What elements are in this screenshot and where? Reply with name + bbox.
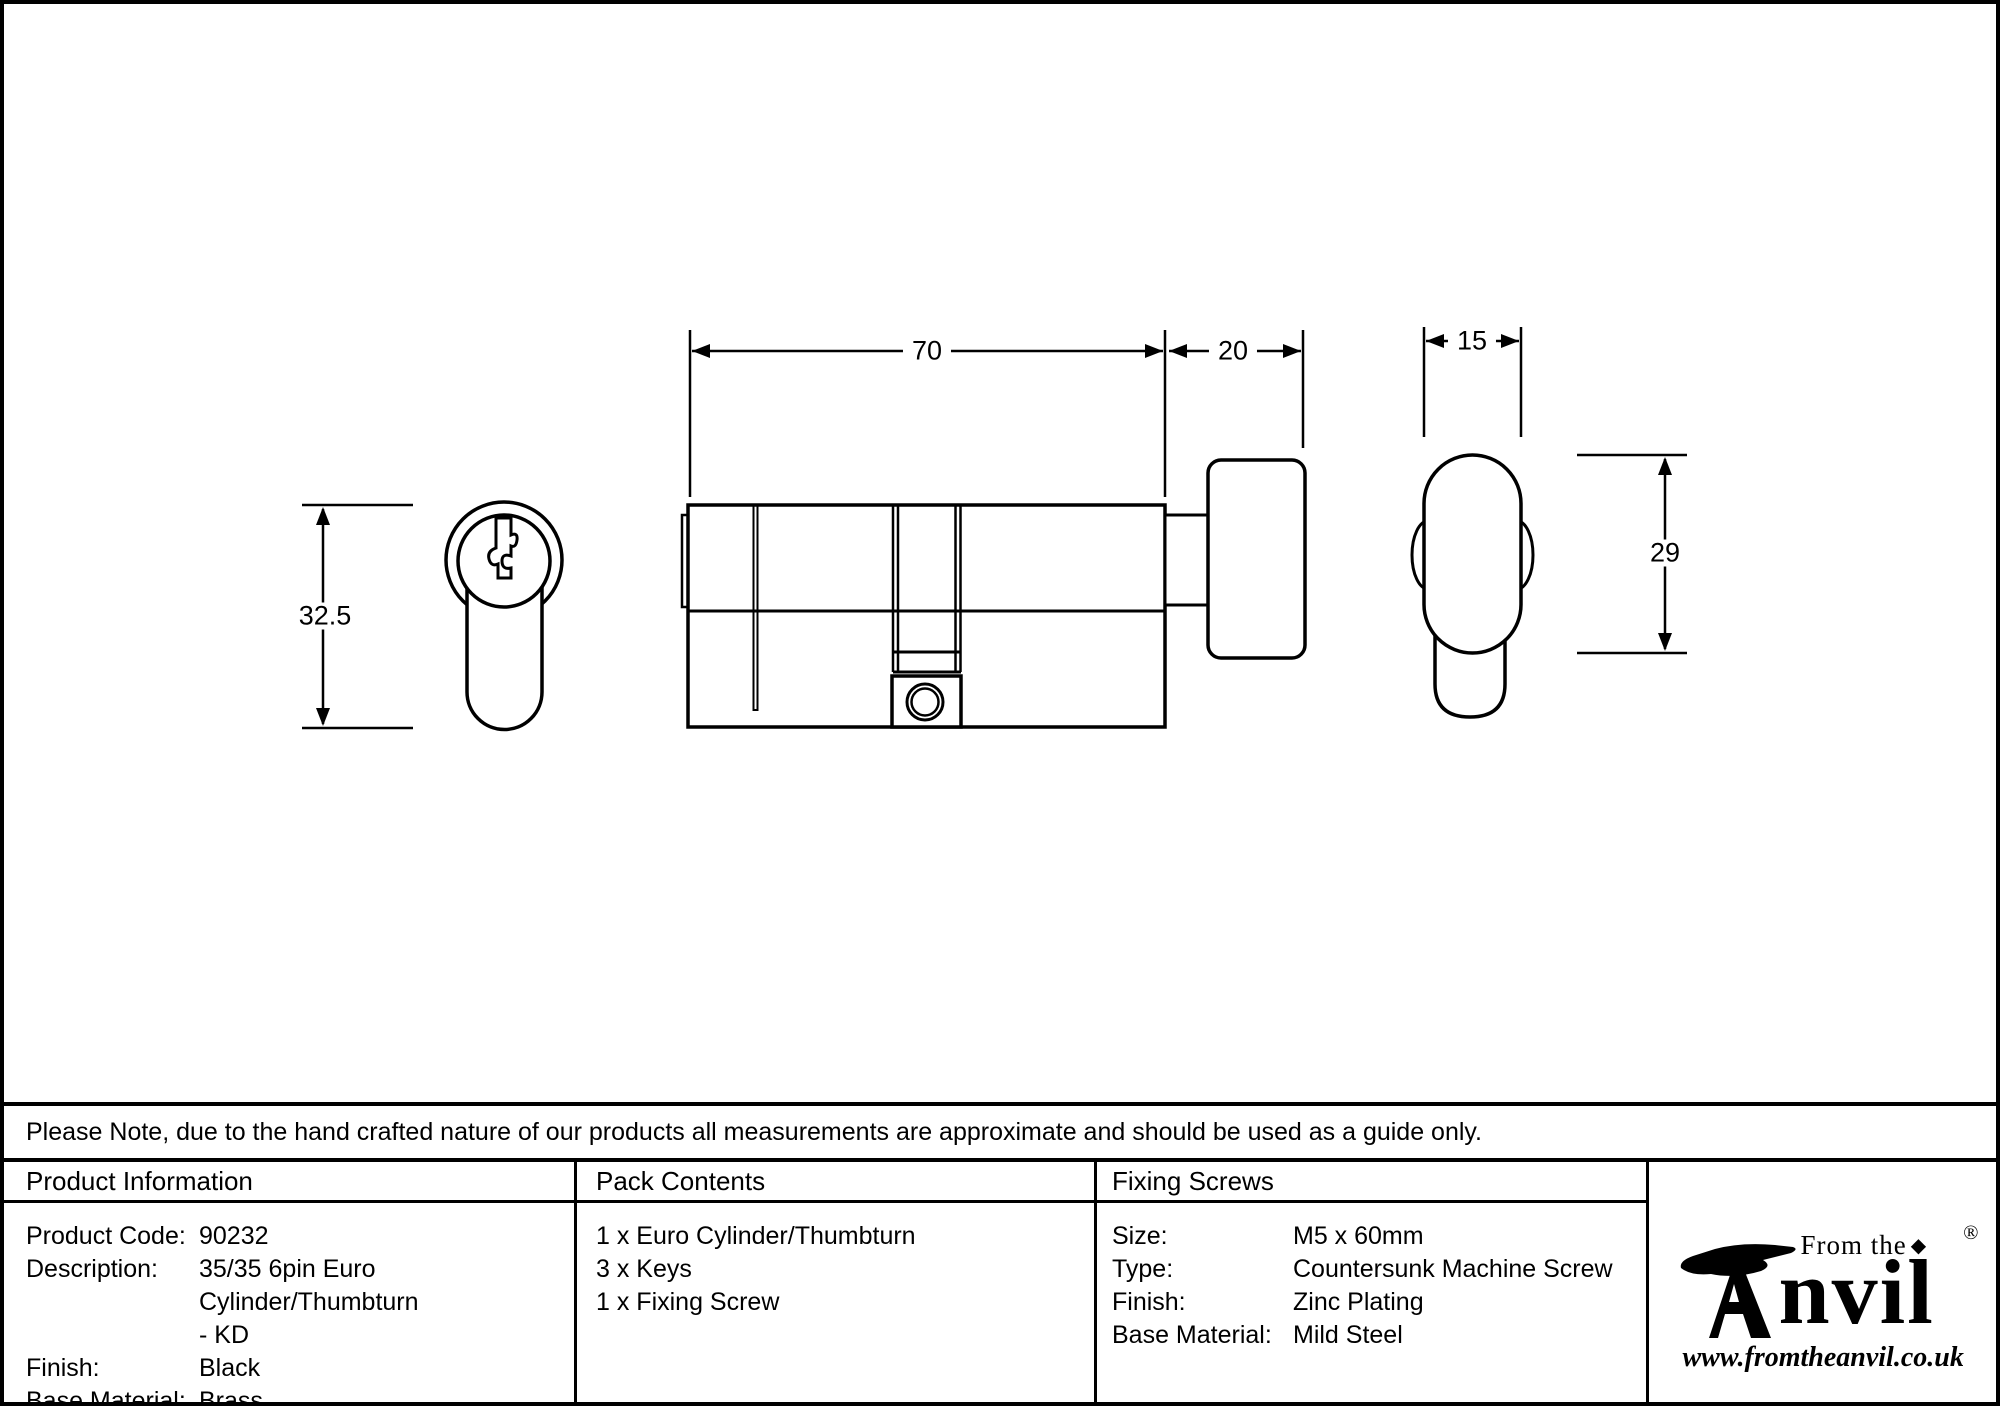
fixing-screws-header: Fixing Screws bbox=[1097, 1162, 1646, 1203]
front-profile-view bbox=[446, 502, 562, 730]
dim-thumbturn-height: 29 bbox=[1641, 540, 1689, 567]
product-information-body: Product Code: 90232 Description: 35/35 6… bbox=[4, 1203, 574, 1406]
pack-contents-column: Pack Contents 1 x Euro Cylinder/Thumbtur… bbox=[574, 1162, 1094, 1402]
row-label: Base Material: bbox=[1112, 1319, 1293, 1352]
registered-trademark-icon: ® bbox=[1963, 1222, 1978, 1245]
spec-table: Product Information Product Code: 90232 … bbox=[4, 1162, 1996, 1402]
row-value: 90232 bbox=[199, 1220, 269, 1253]
row-value: Countersunk Machine Screw bbox=[1293, 1253, 1613, 1286]
table-row: Type: Countersunk Machine Screw bbox=[1097, 1253, 1646, 1286]
cylinder-drawing-svg bbox=[4, 4, 1996, 1102]
dim-thumbturn-length: 20 bbox=[1209, 338, 1257, 365]
table-row: Product Code: 90232 bbox=[4, 1220, 574, 1253]
row-label: Base Material: bbox=[26, 1385, 199, 1406]
table-row: Finish: Zinc Plating bbox=[1097, 1286, 1646, 1319]
logo-anvil-text: nvil bbox=[1779, 1246, 1935, 1338]
fixing-screws-column: Fixing Screws Size: M5 x 60mm Type: Coun… bbox=[1094, 1162, 1646, 1402]
row-value: Zinc Plating bbox=[1293, 1286, 1424, 1319]
spec-sheet-page: 70 20 15 32.5 29 Please Note, due to the… bbox=[0, 0, 2000, 1406]
row-value: 35/35 6pin Euro Cylinder/Thumbturn - KD bbox=[199, 1253, 574, 1352]
product-information-column: Product Information Product Code: 90232 … bbox=[4, 1162, 574, 1402]
table-row: Finish: Black bbox=[4, 1352, 574, 1385]
row-label: Product Code: bbox=[26, 1220, 199, 1253]
side-elevation-view bbox=[682, 460, 1305, 727]
row-label: Finish: bbox=[1112, 1286, 1293, 1319]
row-label: Finish: bbox=[26, 1352, 199, 1385]
row-value: Mild Steel bbox=[1293, 1319, 1403, 1352]
measurement-note-bar: Please Note, due to the hand crafted nat… bbox=[4, 1102, 1996, 1162]
dim-body-length: 70 bbox=[903, 338, 951, 365]
fixing-screws-body: Size: M5 x 60mm Type: Countersunk Machin… bbox=[1097, 1203, 1646, 1402]
pack-contents-body: 1 x Euro Cylinder/Thumbturn 3 x Keys 1 x… bbox=[577, 1203, 1094, 1402]
measurement-note-text: Please Note, due to the hand crafted nat… bbox=[26, 1118, 1482, 1147]
pack-contents-header: Pack Contents bbox=[577, 1162, 1094, 1203]
table-row: Description: 35/35 6pin Euro Cylinder/Th… bbox=[4, 1253, 574, 1352]
row-label: Size: bbox=[1112, 1220, 1293, 1253]
dim-profile-height: 32.5 bbox=[290, 603, 361, 630]
row-value: Black bbox=[199, 1352, 260, 1385]
table-row: Base Material: Mild Steel bbox=[1097, 1319, 1646, 1352]
brand-logo-cell: From the◆ nvil ® www.fromtheanvil.co.uk bbox=[1646, 1162, 1996, 1402]
list-item: 1 x Euro Cylinder/Thumbturn bbox=[577, 1220, 1094, 1253]
row-value: M5 x 60mm bbox=[1293, 1220, 1424, 1253]
list-item: 3 x Keys bbox=[577, 1253, 1094, 1286]
dim-thumbturn-width: 15 bbox=[1448, 328, 1496, 355]
table-row: Size: M5 x 60mm bbox=[1097, 1220, 1646, 1253]
row-label: Type: bbox=[1112, 1253, 1293, 1286]
thumbturn-end-view bbox=[1412, 455, 1533, 717]
logo-website-url: www.fromtheanvil.co.uk bbox=[1683, 1342, 1963, 1374]
product-information-header: Product Information bbox=[4, 1162, 574, 1203]
table-row: Base Material: Brass bbox=[4, 1385, 574, 1406]
row-label: Description: bbox=[26, 1253, 199, 1352]
row-value: Brass bbox=[199, 1385, 263, 1406]
from-the-anvil-logo: From the◆ nvil ® www.fromtheanvil.co.uk bbox=[1683, 1228, 1963, 1374]
technical-drawing: 70 20 15 32.5 29 bbox=[4, 4, 1996, 1102]
list-item: 1 x Fixing Screw bbox=[577, 1286, 1094, 1319]
